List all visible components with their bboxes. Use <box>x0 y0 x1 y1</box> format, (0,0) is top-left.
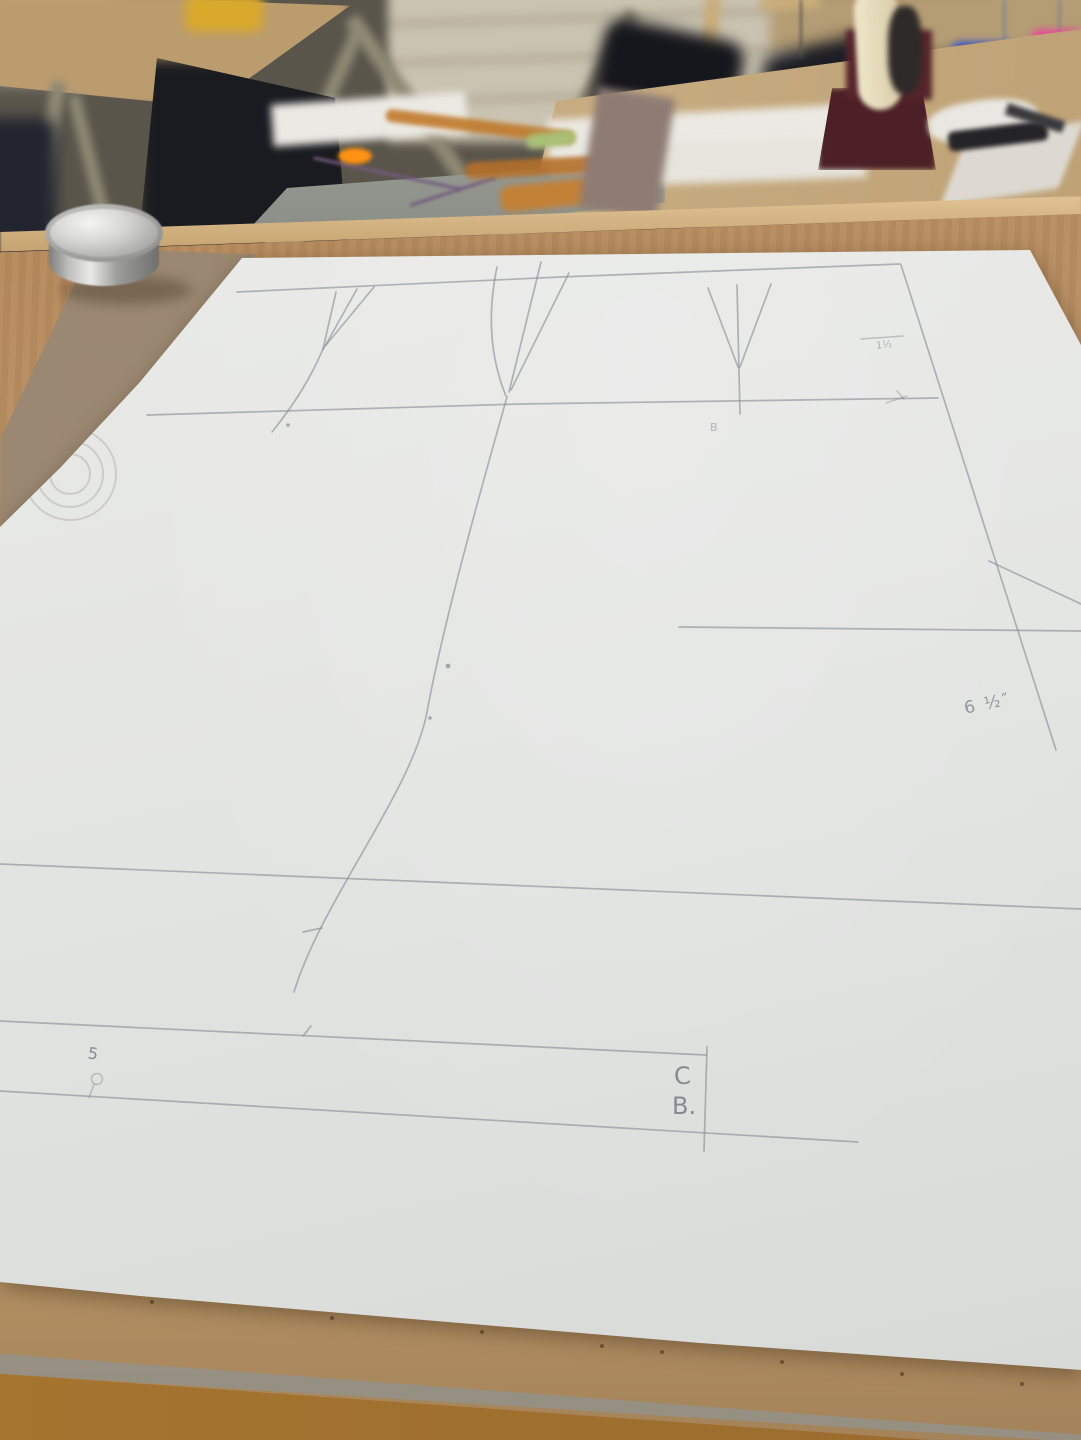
notch-tick <box>303 1026 311 1036</box>
center-back-label-c: C <box>673 1061 692 1090</box>
pencil-dots <box>286 423 450 720</box>
cb-vertical-line <box>704 1047 707 1151</box>
pencil-faint-marks <box>89 336 907 1098</box>
pencil-drafting-lines <box>0 0 1081 1440</box>
mid-dart-line <box>509 262 541 392</box>
pattern-paper-wrap: C B. 6 ½″ 5 1½ B <box>0 0 1081 1440</box>
hem-line <box>0 864 1081 909</box>
center-seam-line <box>294 397 507 992</box>
pencil-dot <box>286 423 290 427</box>
pencil-dot <box>446 664 451 669</box>
mid-dart-line <box>511 273 569 390</box>
left-dart-tail <box>272 349 323 432</box>
measurement-dash <box>861 336 903 339</box>
top-guide-line <box>237 264 900 292</box>
bottom-line <box>0 1091 858 1142</box>
right-dart-center <box>737 285 740 414</box>
mid-guide-line <box>679 627 1081 631</box>
hip-guide-line <box>147 398 938 415</box>
center-back-label-b: B. <box>672 1092 696 1120</box>
point-label-b: B <box>710 421 718 434</box>
ring-impressions <box>24 428 116 520</box>
pattern-paper: C B. 6 ½″ 5 1½ B <box>0 0 1081 1440</box>
left-dart-line <box>324 289 357 348</box>
balloon-notch <box>92 1074 103 1085</box>
right-seam-line <box>901 265 1056 750</box>
measurement-1-5: 1½ <box>875 339 892 352</box>
lower-guide-line <box>0 1021 706 1055</box>
right-dart-line <box>708 288 738 367</box>
left-dart-line <box>326 287 374 345</box>
photo-canvas: C B. 6 ½″ 5 1½ B <box>0 0 1081 1440</box>
mid-dart-curve <box>491 267 506 396</box>
pencil-construction-lines <box>0 262 1081 1151</box>
pencil-dot <box>428 716 432 720</box>
right-dart-line <box>740 284 771 367</box>
